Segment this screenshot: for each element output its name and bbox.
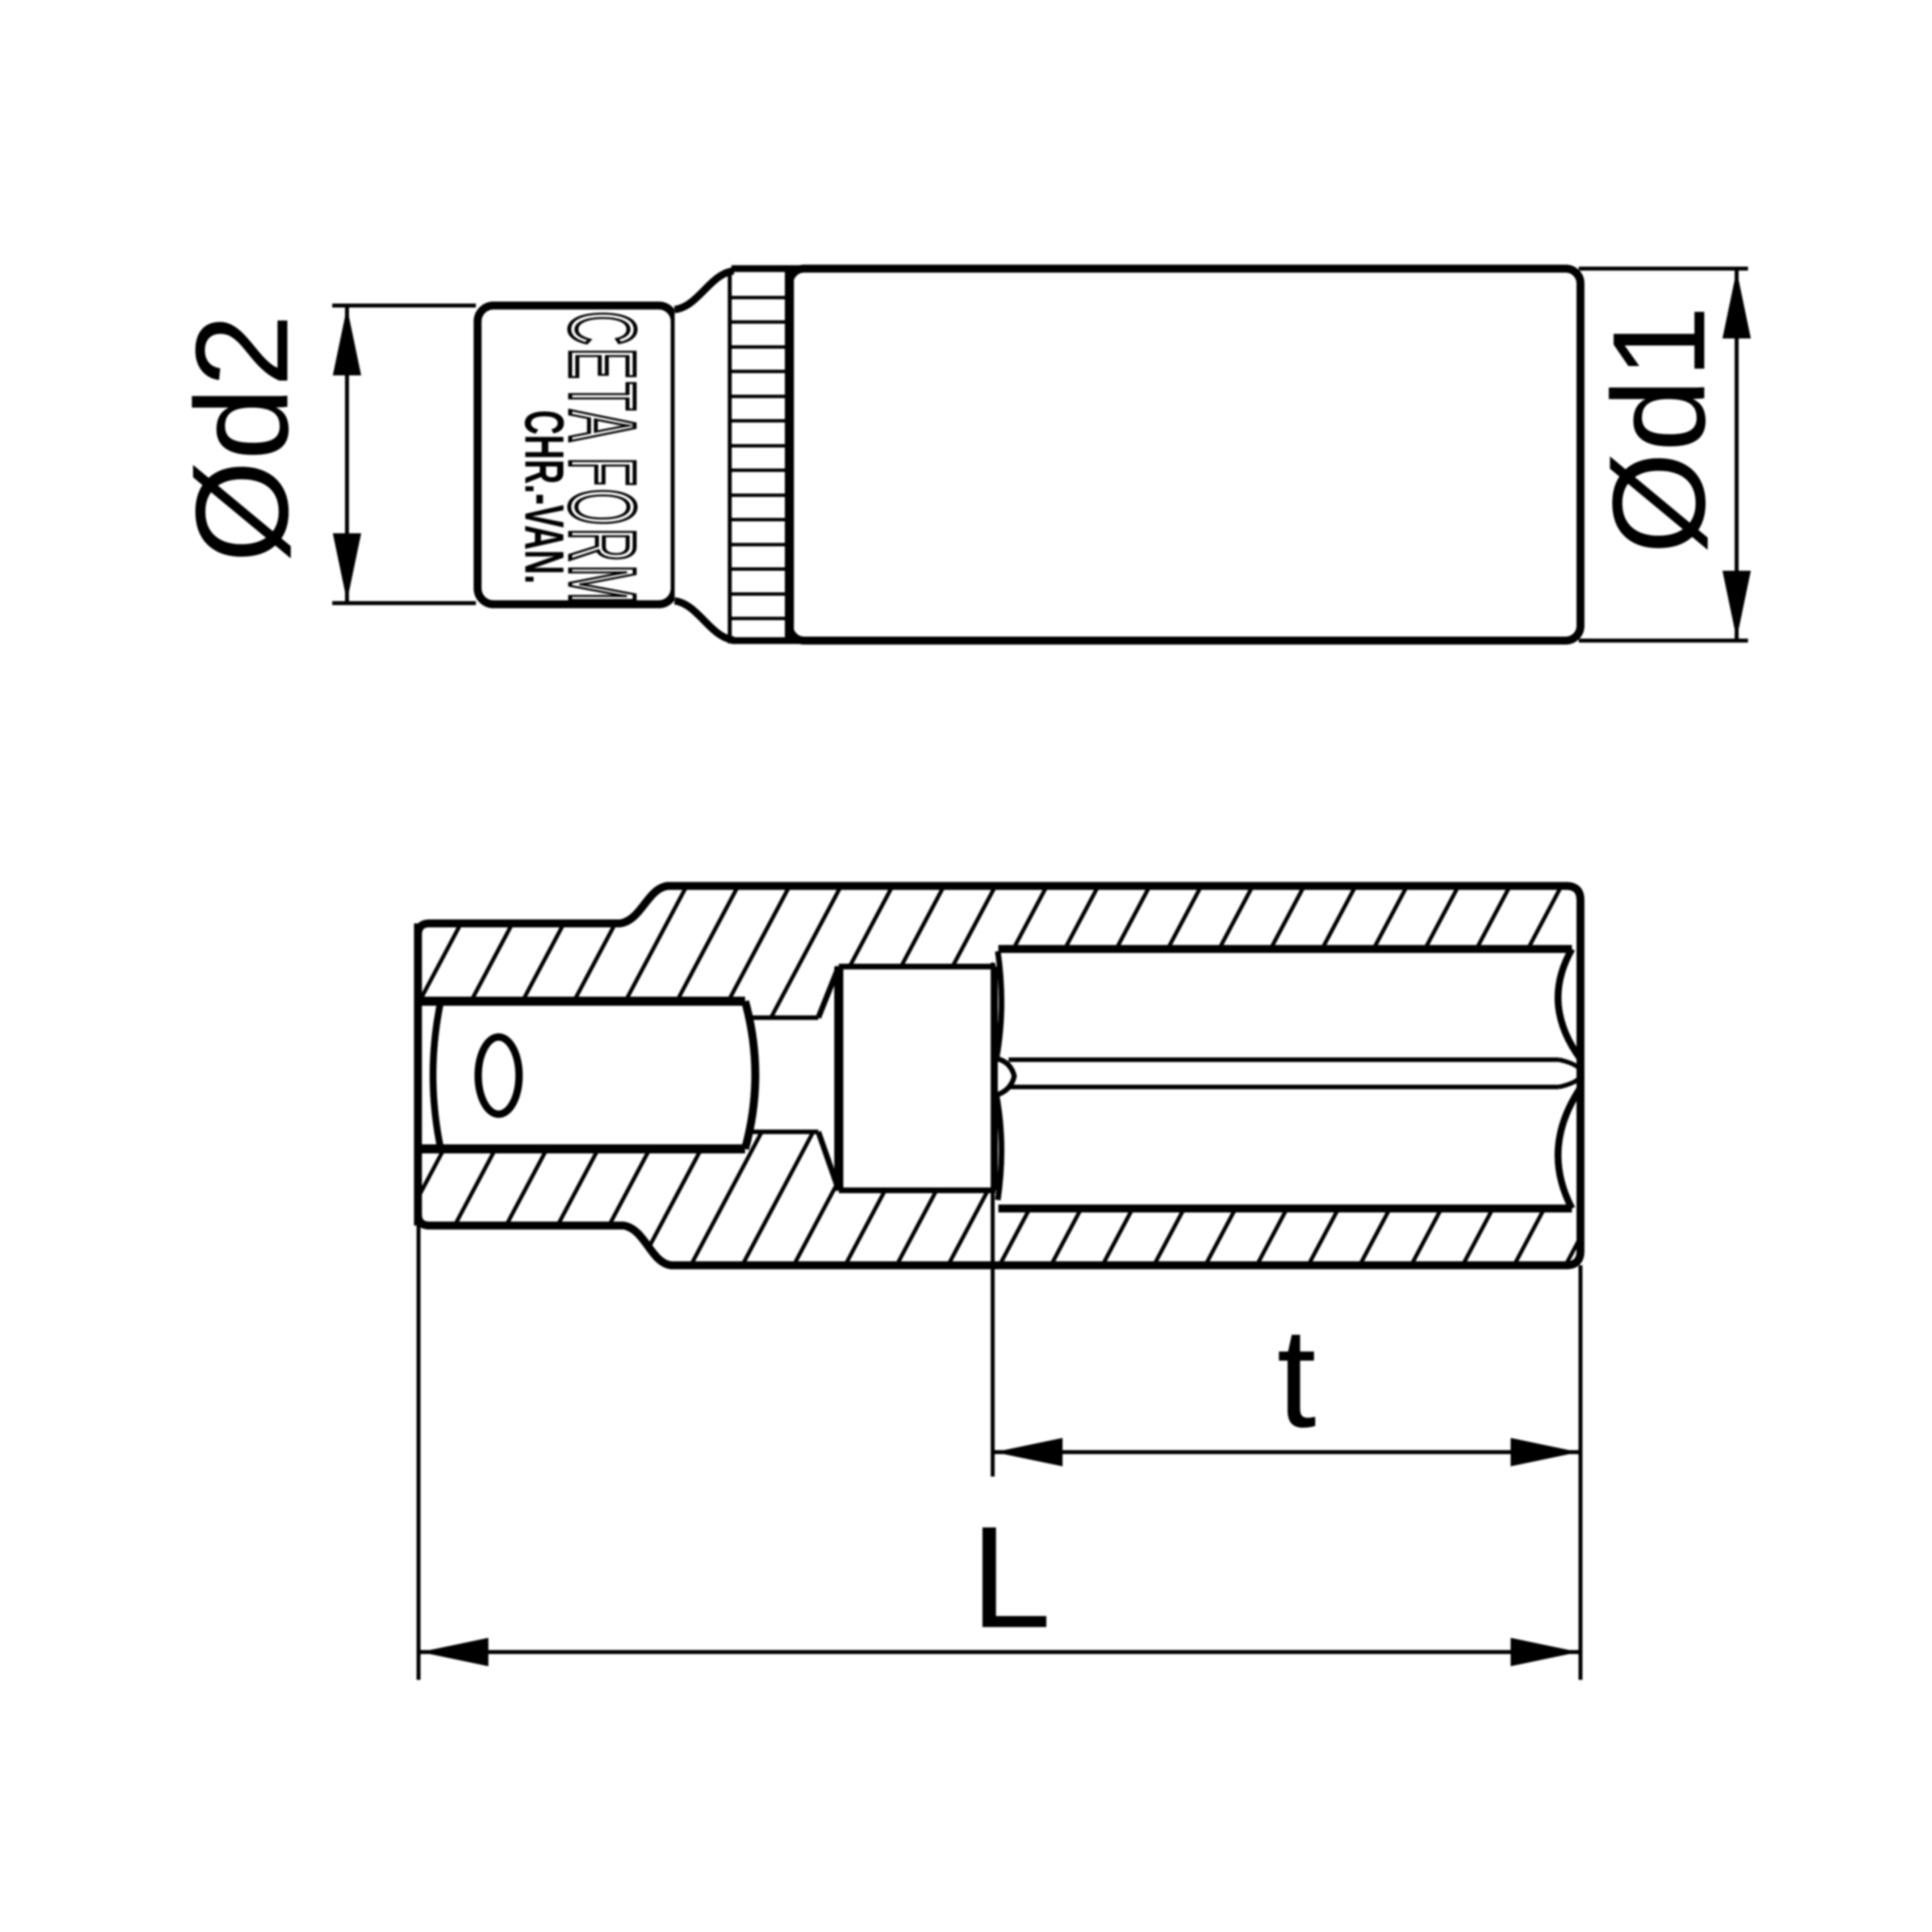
svg-text:Ød1: Ød1 [1586, 306, 1733, 555]
svg-text:t: t [1277, 1298, 1316, 1457]
svg-text:Ød2: Ød2 [169, 314, 316, 563]
svg-text:L: L [971, 1496, 1051, 1658]
svg-text:CHR.-VAN.: CHR.-VAN. [513, 410, 574, 584]
